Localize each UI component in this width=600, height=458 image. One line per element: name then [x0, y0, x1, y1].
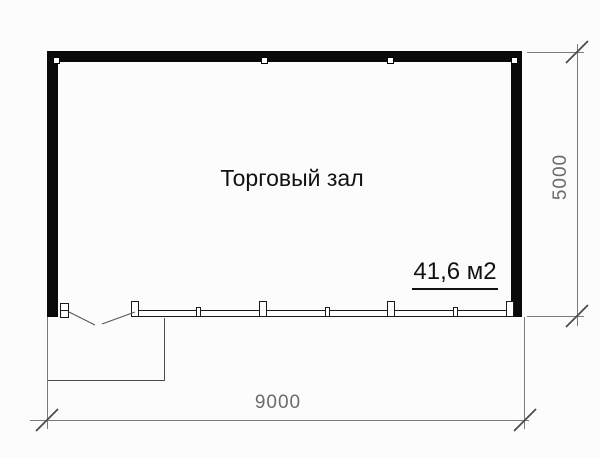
dimension-line-right — [577, 44, 578, 326]
extension-line-top-right — [527, 52, 584, 53]
column-marker — [511, 57, 518, 64]
porch-edge-right — [164, 318, 165, 381]
dimension-width-label: 9000 — [230, 392, 326, 414]
extension-line-left — [47, 317, 48, 429]
room-label: Торговый зал — [192, 165, 392, 192]
column-marker — [261, 57, 268, 64]
porch-edge-bottom — [47, 380, 165, 381]
column-marker — [53, 57, 60, 64]
mullion-post — [259, 301, 267, 317]
area-label: 41,6 м2 — [412, 258, 498, 290]
glazing-divider — [453, 307, 458, 317]
glazing-divider — [196, 307, 201, 317]
door-swing-and-ticks — [0, 0, 600, 458]
mullion-post — [506, 301, 514, 317]
door-leaf-left — [69, 312, 95, 325]
extension-line-right — [524, 317, 525, 429]
mullion-post — [131, 301, 139, 317]
floor-plan: Торговый зал 41,6 м2 9000 5000 — [0, 0, 600, 458]
wall-left — [47, 51, 58, 317]
extension-line-bottom-right — [527, 316, 584, 317]
wall-right — [511, 51, 522, 317]
wall-top — [47, 51, 522, 62]
dimension-height-label: 5000 — [550, 137, 572, 217]
column-marker — [387, 57, 394, 64]
glazing-divider — [325, 307, 330, 317]
mullion-post — [387, 301, 395, 317]
door-jamb — [60, 310, 69, 318]
dimension-line-bottom — [30, 420, 529, 421]
